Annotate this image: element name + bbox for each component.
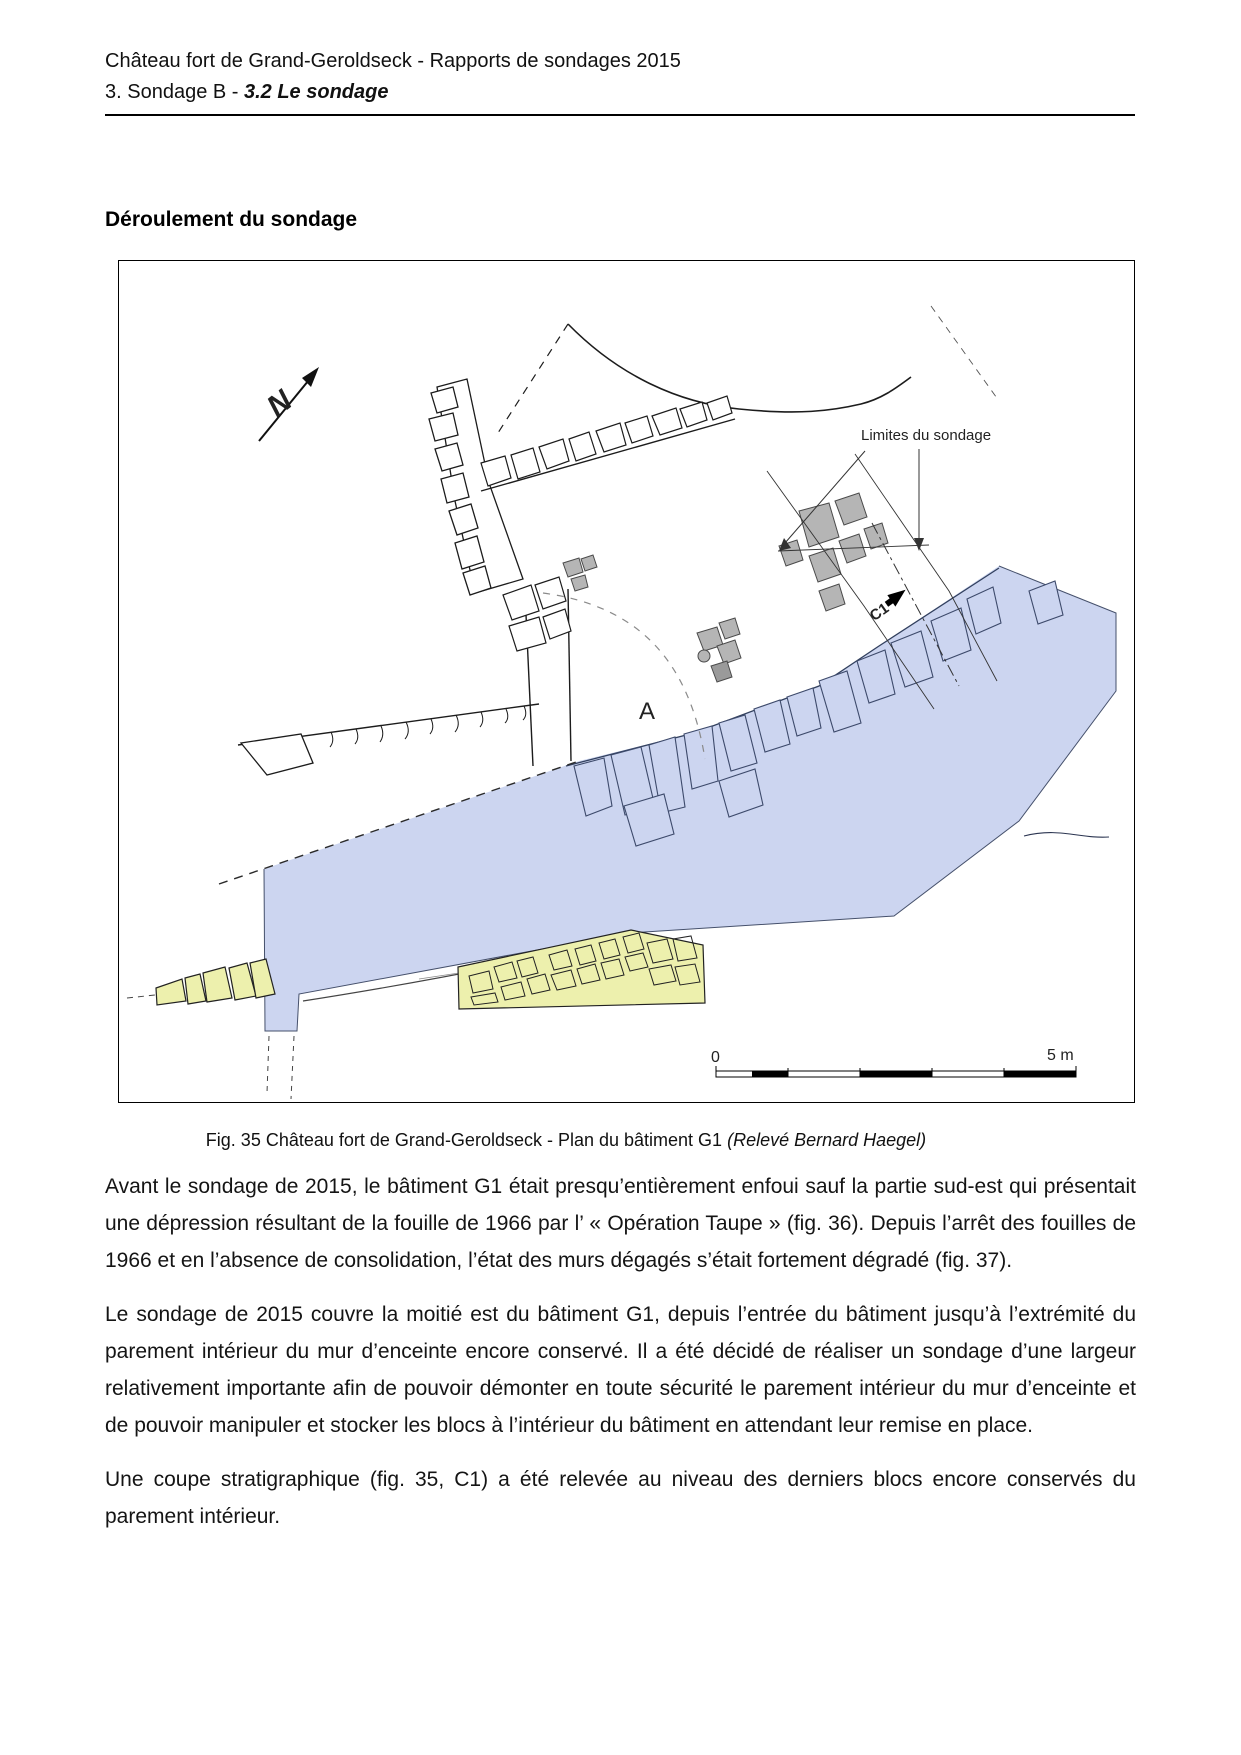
report-page: Château fort de Grand-Geroldseck - Rappo…	[0, 0, 1241, 1755]
scale-bar: 0 5 m	[711, 1047, 1076, 1077]
figure-caption: Fig. 35 Château fort de Grand-Geroldseck…	[105, 1130, 1135, 1151]
west-wall	[238, 704, 539, 775]
header-section-line: 3. Sondage B - 3.2 Le sondage	[105, 77, 1135, 108]
header-title-line: Château fort de Grand-Geroldseck - Rappo…	[105, 46, 1135, 77]
paragraph-3: Une coupe stratigraphique (fig. 35, C1) …	[105, 1461, 1136, 1535]
paragraph-1: Avant le sondage de 2015, le bâtiment G1…	[105, 1168, 1136, 1279]
header-section-prefix: 3. Sondage B -	[105, 81, 244, 103]
north-label: N	[261, 383, 299, 423]
scale-five-label: 5 m	[1047, 1047, 1074, 1064]
section-heading: Déroulement du sondage	[105, 208, 357, 232]
building-wall-northwest	[429, 379, 523, 595]
caption-credit: (Relevé Bernard Haegel)	[727, 1130, 926, 1150]
figure-35-plan: N Limites du sondage C1 A	[118, 260, 1135, 1103]
cliff-line	[496, 306, 999, 436]
central-wall	[503, 577, 571, 766]
north-arrow-icon: N	[259, 367, 319, 441]
page-header: Château fort de Grand-Geroldseck - Rappo…	[105, 46, 1135, 108]
body-text: Avant le sondage de 2015, le bâtiment G1…	[105, 1168, 1136, 1552]
building-wall-north-stones	[481, 396, 735, 491]
plan-drawing: N Limites du sondage C1 A	[119, 261, 1134, 1102]
caption-main: Fig. 35 Château fort de Grand-Geroldseck…	[206, 1130, 727, 1150]
paragraph-2: Le sondage de 2015 couvre la moitié est …	[105, 1296, 1136, 1444]
header-section-emphasis: 3.2 Le sondage	[244, 81, 389, 103]
grey-stones	[563, 493, 888, 682]
scale-zero-label: 0	[711, 1049, 720, 1066]
limites-label: Limites du sondage	[861, 427, 991, 444]
header-rule	[105, 114, 1135, 116]
zone-a-label: A	[639, 698, 655, 725]
